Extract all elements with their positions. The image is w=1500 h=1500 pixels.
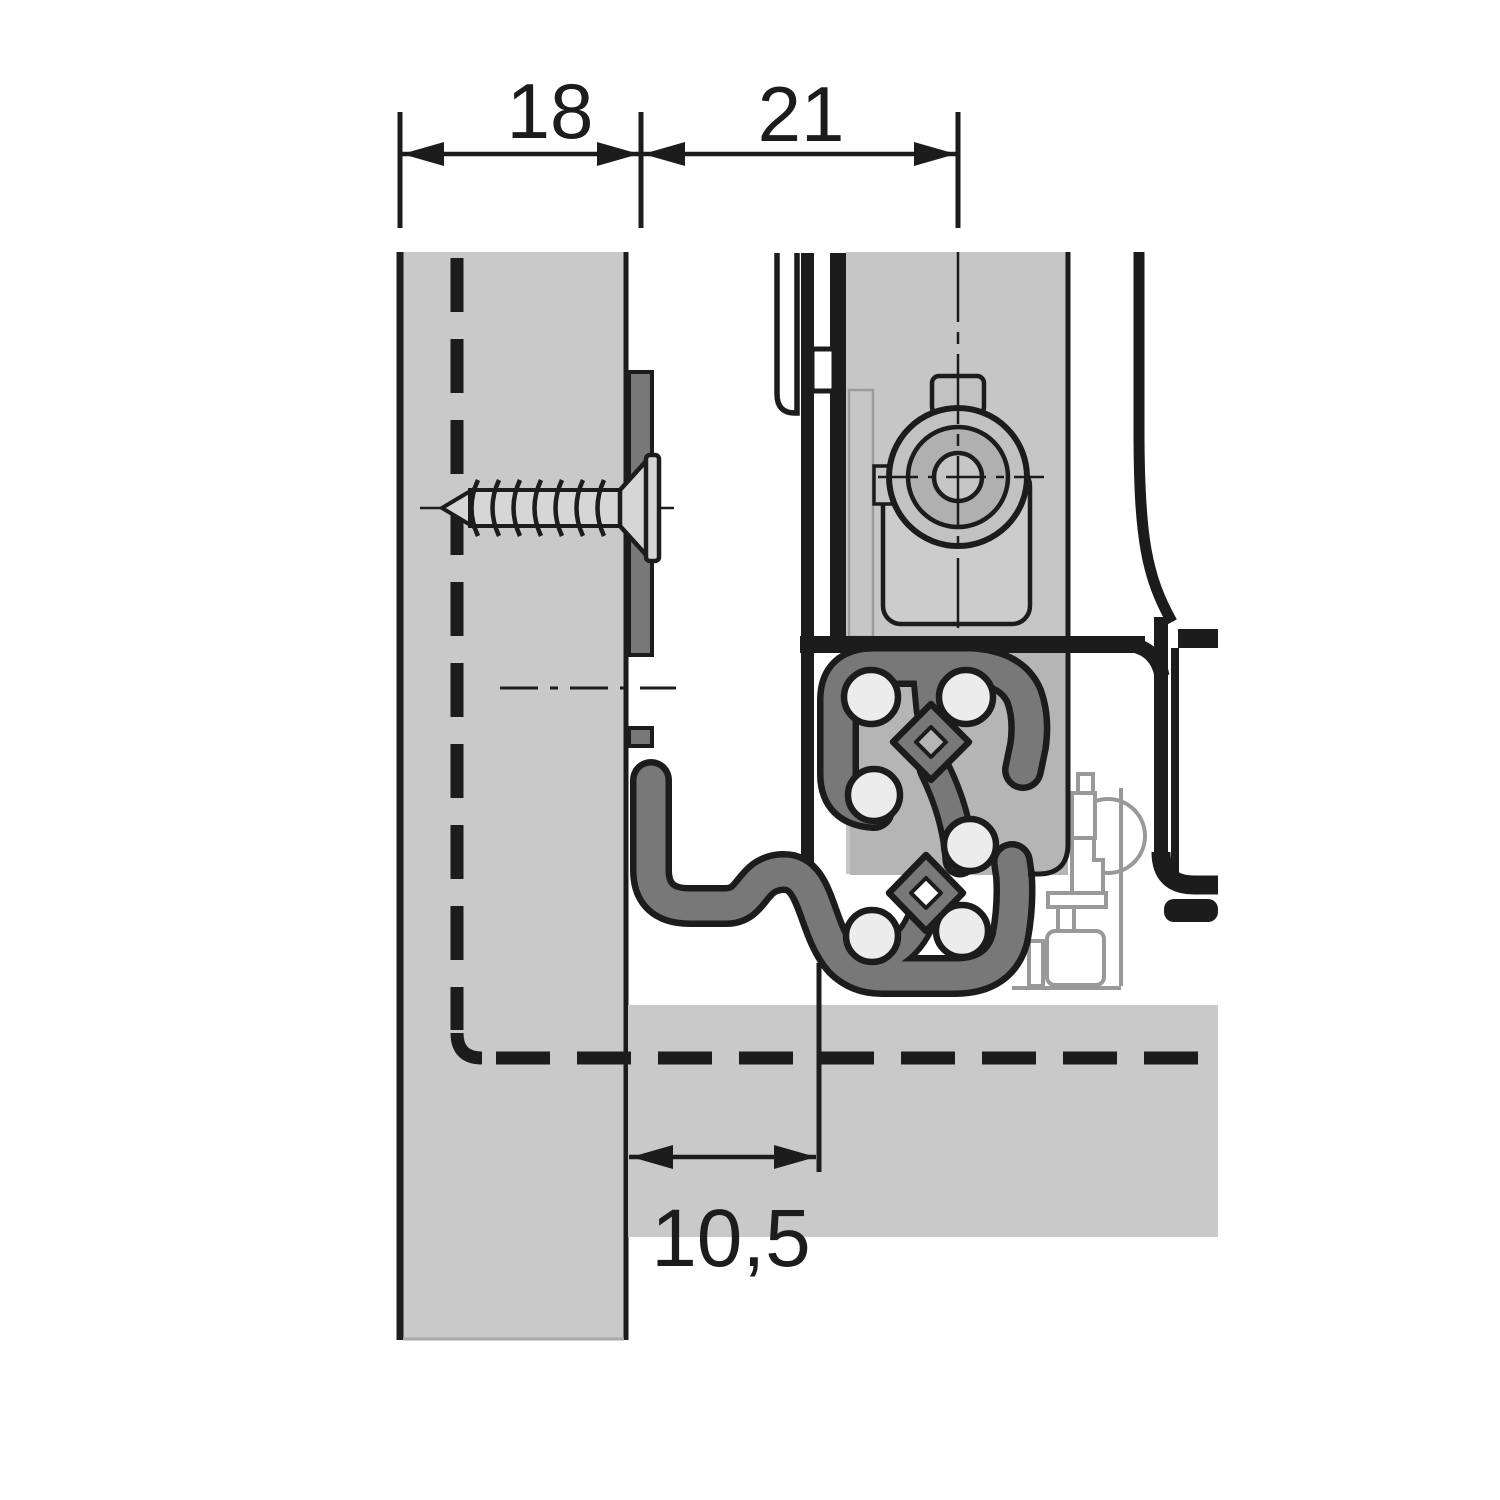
arrow-21-right [914, 142, 956, 166]
outer-wall-bottom-flange [1161, 852, 1218, 885]
latch-base [1047, 931, 1104, 985]
technical-drawing-page: 18 21 10,5 [0, 0, 1500, 1500]
dimension-label-18: 18 [507, 67, 594, 155]
outer-wall-inner-line [1171, 648, 1179, 874]
ball-mid-right [944, 819, 996, 871]
outer-wall-foot [1164, 899, 1218, 922]
ball-top-left [844, 670, 898, 724]
panel-body [402, 252, 626, 1340]
bracket-bar-outer [830, 253, 846, 645]
latch-block [1072, 793, 1095, 838]
arrow-18-left [402, 142, 444, 166]
screw-head-face [646, 455, 659, 561]
bracket-hook-channel [777, 253, 797, 413]
latch-pin [1078, 774, 1093, 793]
latch-foot [1029, 941, 1043, 986]
cabinet-side-panel [400, 252, 626, 1340]
dimension-label-10-5: 10,5 [651, 1193, 811, 1284]
strip-lower [629, 728, 652, 746]
arrow-21-left [643, 142, 685, 166]
dimension-label-21: 21 [758, 70, 845, 158]
latch-bar [1048, 893, 1106, 907]
outer-wall-lower [1154, 617, 1168, 869]
outer-wall-top-flange [1178, 629, 1218, 648]
bracket-bar-inner [801, 253, 814, 863]
drawer-outer-wall [1139, 252, 1218, 922]
latch-stem [1058, 907, 1074, 931]
outer-wall-upper [1139, 252, 1172, 622]
ball-bottom-left [846, 910, 898, 962]
ball-mid-left [848, 769, 900, 821]
bracket-clip-window [812, 349, 834, 391]
arrow-18-right [597, 142, 639, 166]
drawer-slide-cross-section: 18 21 10,5 [0, 0, 1500, 1500]
